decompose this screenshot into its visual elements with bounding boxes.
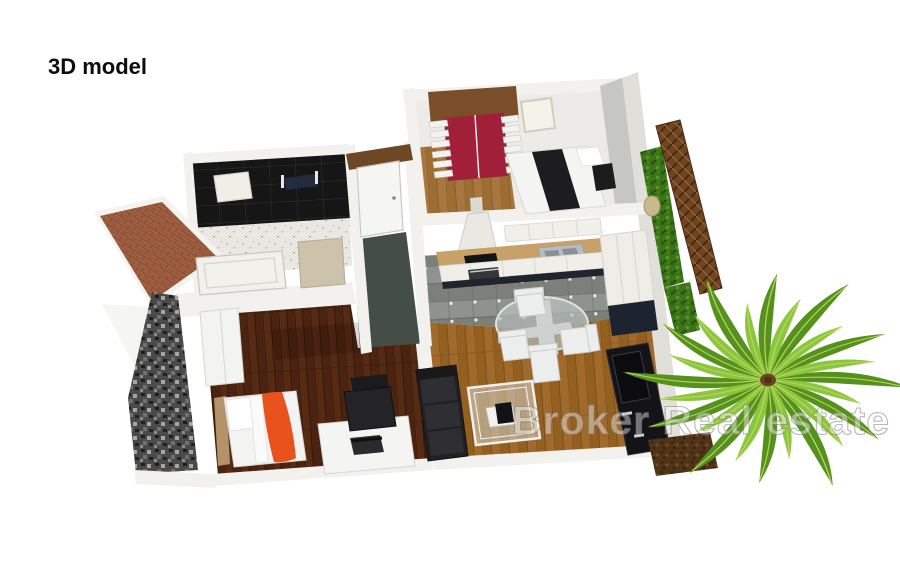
stepping-stone xyxy=(644,196,660,216)
towel-rail-post xyxy=(281,175,284,188)
palm-crown-core xyxy=(764,377,772,383)
floorplan-render: Broker Real estate 3D model xyxy=(0,0,900,563)
kitchen-window-band xyxy=(608,300,658,336)
chair-seat xyxy=(560,327,590,355)
sink-basin xyxy=(562,248,578,255)
skylight-window xyxy=(521,98,555,132)
bed-pillow xyxy=(226,397,254,431)
chair-seat xyxy=(530,349,560,383)
shower-mat xyxy=(214,172,252,202)
chair-seat xyxy=(516,293,546,317)
watermark: Broker Real estate xyxy=(512,399,890,443)
door-handle xyxy=(392,196,396,200)
tall-cabinets xyxy=(600,230,654,306)
entrance-door xyxy=(357,161,403,237)
sofa-cushion xyxy=(428,428,464,456)
screenshot-canvas: Broker Real estate 3D model xyxy=(0,0,900,563)
page-title: 3D model xyxy=(48,54,147,79)
nightstand xyxy=(592,163,616,191)
vanity-cabinet xyxy=(298,238,345,288)
outer-trim-bottom-left xyxy=(134,470,216,488)
wardrobe-white xyxy=(200,308,244,386)
sofa-cushion xyxy=(420,376,457,404)
office-chair-seat xyxy=(344,387,396,431)
chair-seat xyxy=(500,335,530,361)
sofa-cushion xyxy=(424,402,461,430)
towel-rail-post xyxy=(315,171,318,184)
